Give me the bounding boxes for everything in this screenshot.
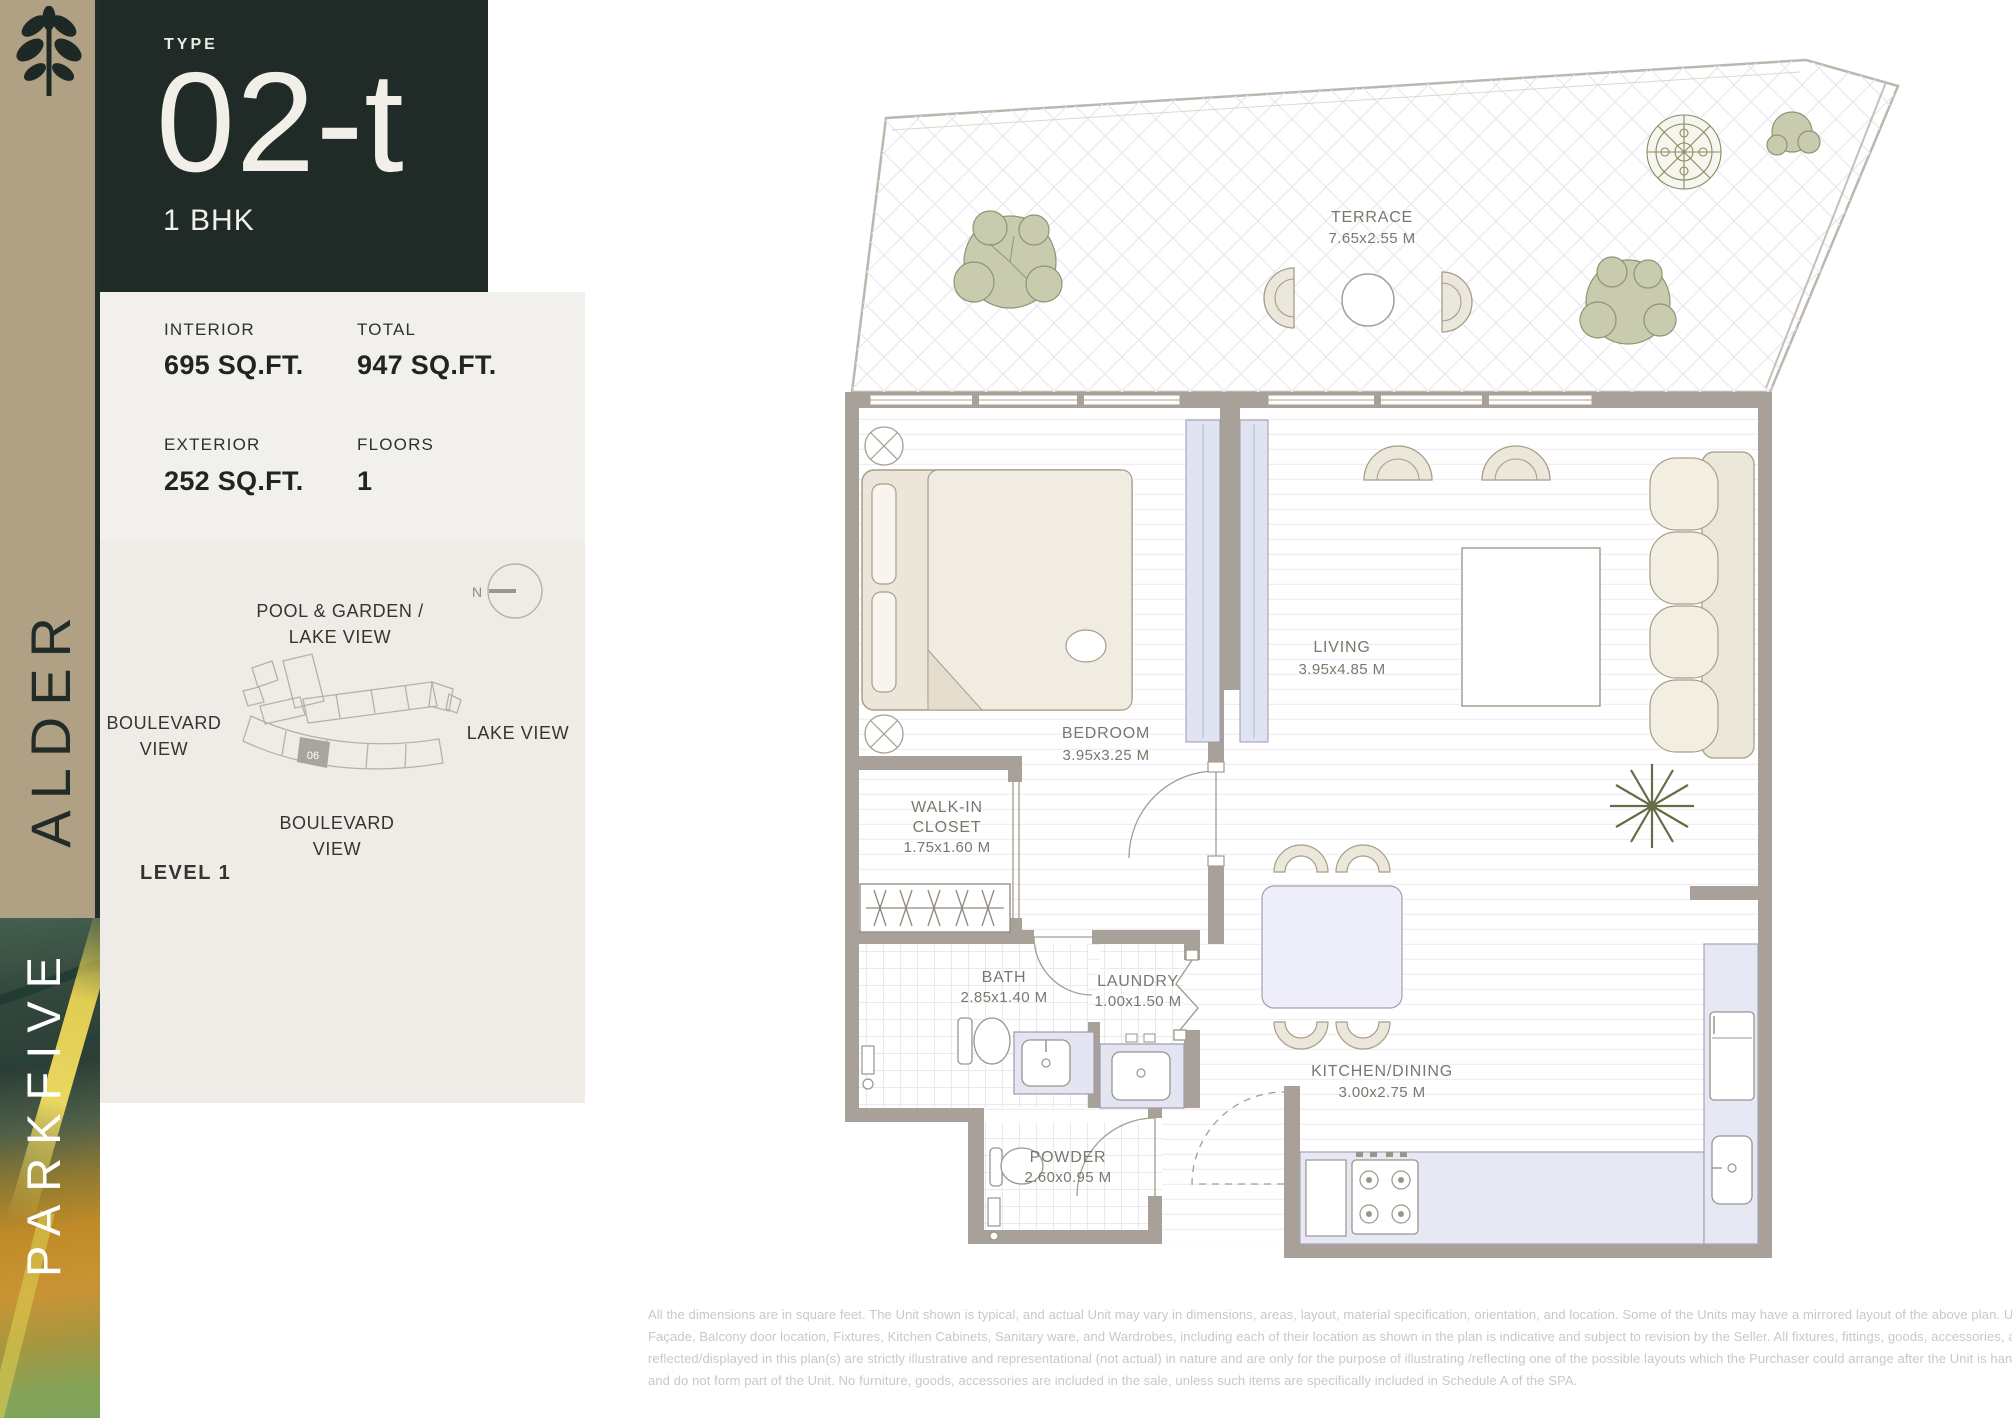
- building-key-diagram: 06: [230, 650, 462, 780]
- label-living: LIVING: [1313, 639, 1370, 656]
- level-label: LEVEL 1: [140, 862, 231, 885]
- label-walkin-1: WALK-IN: [911, 799, 983, 816]
- bath-vanity: [1014, 1032, 1094, 1094]
- disclaimer-line: reflected/displayed in this plan(s) are …: [648, 1348, 2012, 1370]
- stat-exterior-value: 252 SQ.FT.: [164, 466, 304, 497]
- label-bedroom-dims: 3.95x3.25 M: [1063, 747, 1150, 764]
- label-bath-dims: 2.85x1.40 M: [961, 989, 1048, 1006]
- stat-total-label: TOTAL: [357, 320, 416, 340]
- label-kitchen: KITCHEN/DINING: [1311, 1063, 1453, 1080]
- brochure-page: ALDER PARKFIVE TYPE 02-t 1 BHK INTERIOR …: [0, 0, 2012, 1418]
- medallion-ornament-icon: [1647, 115, 1721, 189]
- label-walkin-dims: 1.75x1.60 M: [904, 839, 991, 856]
- label-bedroom: BEDROOM: [1062, 725, 1150, 742]
- bath-accessory: [862, 1046, 874, 1089]
- view-top-label: POOL & GARDEN /LAKE VIEW: [208, 598, 472, 650]
- stat-exterior-label: EXTERIOR: [164, 435, 261, 455]
- stat-floors-label: FLOORS: [357, 435, 434, 455]
- compass-n-label: N: [472, 584, 482, 600]
- floor-plan: TERRACE 7.65x2.55 M: [820, 30, 1932, 1282]
- label-terrace: TERRACE: [1331, 209, 1413, 226]
- label-powder-dims: 2.60x0.95 M: [1025, 1169, 1112, 1186]
- stove-icon: [1352, 1152, 1418, 1234]
- closet-hangers: [860, 884, 1010, 932]
- label-kitchen-dims: 3.00x2.75 M: [1339, 1084, 1426, 1101]
- disclaimer-text: All the dimensions are in square feet. T…: [648, 1304, 2012, 1392]
- view-left-label: BOULEVARDVIEW: [89, 710, 239, 762]
- label-bath: BATH: [982, 969, 1027, 986]
- kitchen-sink-icon: [1712, 1136, 1752, 1204]
- flower-logo-icon: [8, 6, 90, 98]
- stat-total-value: 947 SQ.FT.: [357, 350, 497, 381]
- label-laundry: LAUNDRY: [1097, 973, 1179, 990]
- bhk-label: 1 BHK: [163, 204, 255, 238]
- label-powder: POWDER: [1030, 1149, 1107, 1166]
- label-living-dims: 3.95x4.85 M: [1299, 661, 1386, 678]
- terrace-area: TERRACE 7.65x2.55 M: [852, 60, 1898, 392]
- unit-type-value: 02-t: [156, 52, 405, 194]
- terrace-table: [1342, 274, 1394, 326]
- bed: [862, 470, 1132, 710]
- building-name-vertical: ALDER: [18, 606, 83, 848]
- stat-floors-value: 1: [357, 466, 372, 497]
- project-name-vertical: PARKFIVE: [16, 944, 71, 1277]
- coffee-table: [1462, 548, 1600, 706]
- dis claimer-line: and do not form part of the Unit. No fur…: [648, 1370, 2012, 1392]
- view-bottom-label: BOULEVARDVIEW: [227, 810, 447, 862]
- stat-interior-label: INTERIOR: [164, 320, 255, 340]
- label-laundry-dims: 1.00x1.50 M: [1095, 993, 1182, 1010]
- laundry-sink: [1100, 1034, 1184, 1108]
- bath-toilet: [958, 1018, 1010, 1064]
- disclaimer-line: Façade, Balcony door location, Fixtures,…: [648, 1326, 2012, 1348]
- label-walkin-2: CLOSET: [913, 819, 982, 836]
- view-right-label: LAKE VIEW: [438, 720, 598, 746]
- label-terrace-dims: 7.65x2.55 M: [1329, 230, 1416, 247]
- disclaimer-line: All the dimensions are in square feet. T…: [648, 1304, 2012, 1326]
- stat-interior-value: 695 SQ.FT.: [164, 350, 304, 381]
- unit-number: 06: [307, 750, 319, 762]
- artwork-strip: PARKFIVE: [0, 918, 100, 1418]
- fridge-icon: [1710, 1012, 1754, 1100]
